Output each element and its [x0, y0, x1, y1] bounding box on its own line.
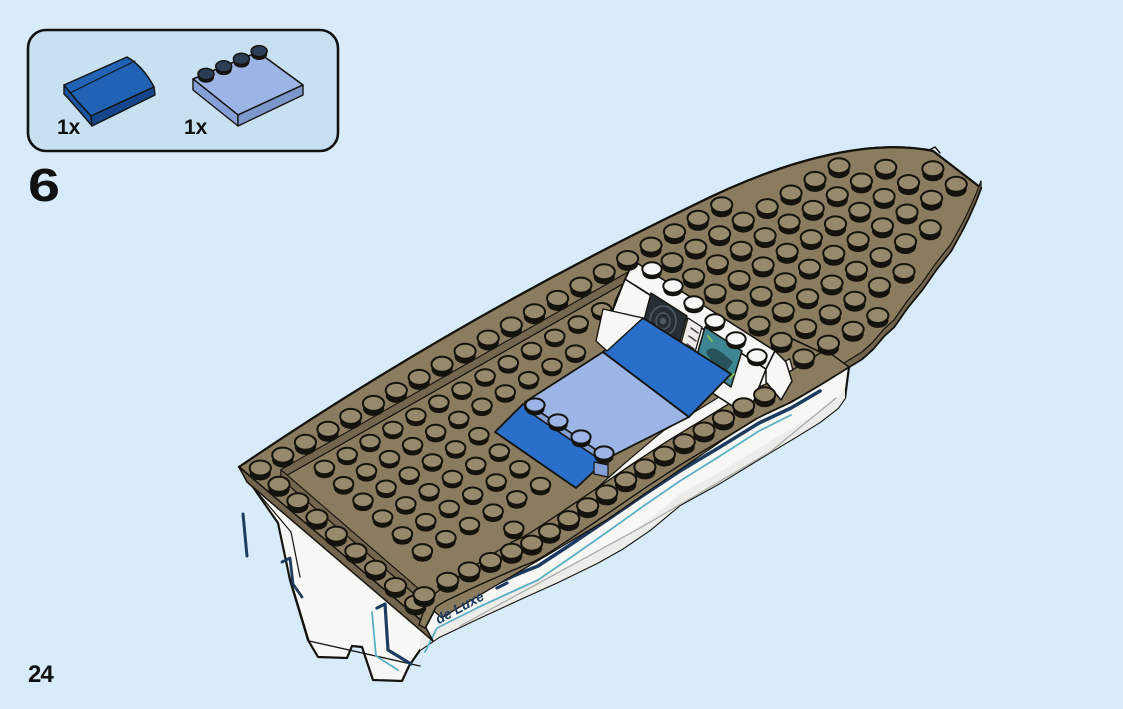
svg-text:1x: 1x	[57, 116, 81, 139]
svg-text:1x: 1x	[184, 116, 208, 139]
